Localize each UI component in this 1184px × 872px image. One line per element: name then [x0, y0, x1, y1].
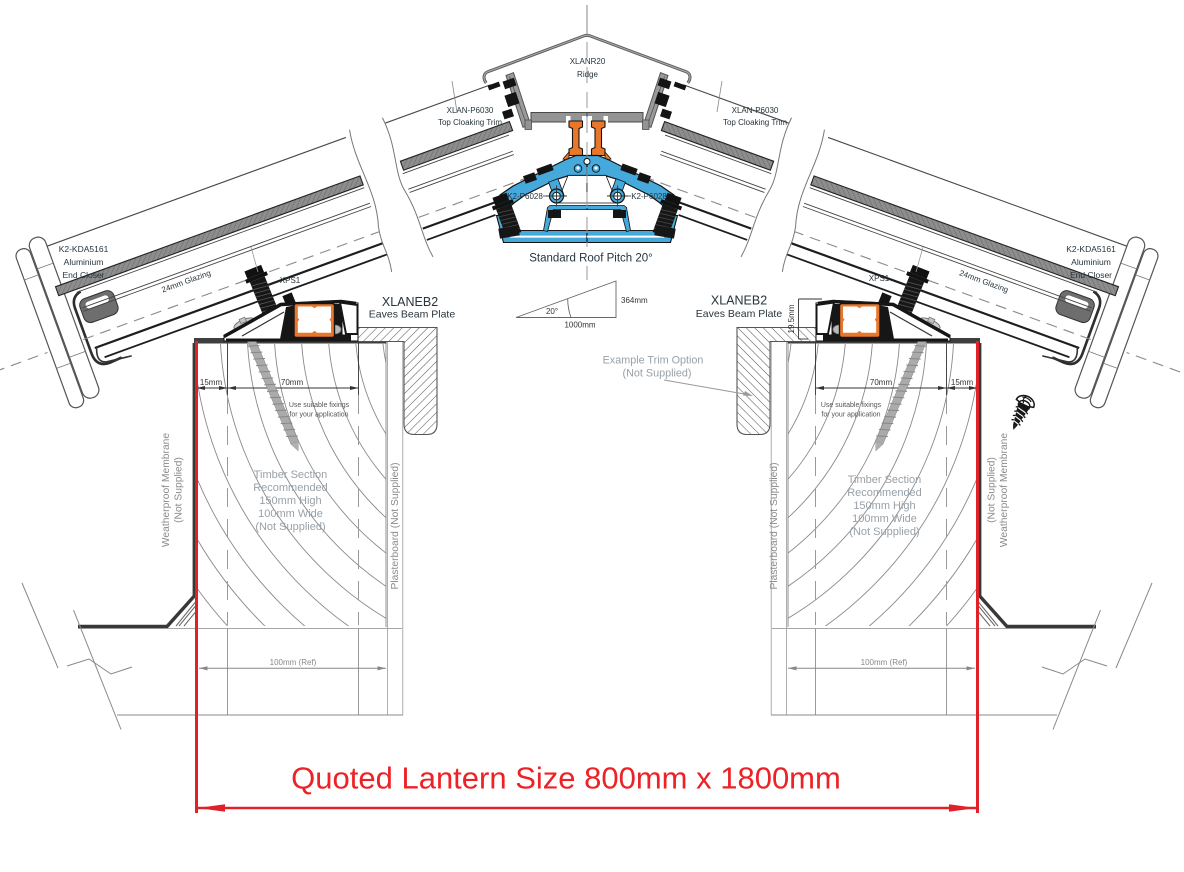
svg-text:19.5mm: 19.5mm — [787, 304, 796, 333]
svg-text:Recommended: Recommended — [847, 487, 922, 499]
svg-text:150mm High: 150mm High — [853, 500, 915, 512]
svg-text:1000mm: 1000mm — [564, 321, 595, 330]
svg-text:Use suitable fixings: Use suitable fixings — [289, 402, 350, 409]
svg-text:24mm Glazing: 24mm Glazing — [160, 268, 212, 294]
svg-text:XLANR20: XLANR20 — [570, 57, 606, 66]
svg-text:End Closer: End Closer — [1070, 270, 1112, 280]
svg-text:Top Cloaking Trim: Top Cloaking Trim — [438, 118, 502, 127]
svg-text:Recommended: Recommended — [253, 482, 328, 494]
svg-text:(Not Supplied): (Not Supplied) — [849, 526, 919, 538]
svg-text:XPS1: XPS1 — [869, 274, 890, 283]
svg-text:Ridge: Ridge — [577, 70, 598, 79]
svg-text:Weatherproof Membrane: Weatherproof Membrane — [161, 433, 172, 548]
svg-text:Eaves Beam Plate: Eaves Beam Plate — [696, 308, 783, 320]
svg-text:(Not Supplied): (Not Supplied) — [987, 457, 998, 523]
svg-text:364mm: 364mm — [621, 296, 648, 305]
svg-text:100mm Wide: 100mm Wide — [852, 513, 917, 525]
svg-text:K2-P6028: K2-P6028 — [631, 192, 667, 201]
svg-text:100mm (Ref): 100mm (Ref) — [270, 658, 317, 667]
svg-text:100mm Wide: 100mm Wide — [258, 508, 323, 520]
svg-text:Aluminium: Aluminium — [1071, 257, 1111, 267]
svg-text:15mm: 15mm — [951, 378, 974, 387]
svg-text:150mm High: 150mm High — [259, 495, 321, 507]
svg-text:XLANEB2: XLANEB2 — [382, 295, 438, 309]
svg-text:Timber Section: Timber Section — [848, 474, 922, 486]
svg-text:(Not Supplied): (Not Supplied) — [255, 521, 325, 533]
svg-text:XPS1: XPS1 — [280, 276, 301, 285]
svg-text:K2-KDA5161: K2-KDA5161 — [59, 244, 109, 254]
svg-text:XLAN-P6030: XLAN-P6030 — [447, 106, 494, 115]
svg-text:Standard Roof Pitch 20°: Standard Roof Pitch 20° — [529, 253, 653, 265]
svg-text:Top Cloaking Trim: Top Cloaking Trim — [723, 118, 787, 127]
svg-text:for your application: for your application — [289, 412, 348, 419]
svg-text:XLAN-P6030: XLAN-P6030 — [732, 106, 779, 115]
svg-text:K2-KDA5161: K2-KDA5161 — [1066, 244, 1116, 254]
svg-text:Eaves Beam Plate: Eaves Beam Plate — [369, 309, 456, 321]
svg-text:Use suitable fixings: Use suitable fixings — [821, 402, 882, 409]
svg-text:Weatherproof Membrane: Weatherproof Membrane — [999, 433, 1010, 548]
svg-text:K2-P6028: K2-P6028 — [507, 192, 543, 201]
svg-text:20°: 20° — [546, 307, 558, 316]
svg-text:Plasterboard (Not Supplied): Plasterboard (Not Supplied) — [390, 462, 401, 589]
svg-text:70mm: 70mm — [281, 378, 304, 387]
svg-text:Aluminium: Aluminium — [64, 257, 104, 267]
svg-text:for your application: for your application — [821, 412, 880, 419]
svg-text:End Closer: End Closer — [62, 270, 104, 280]
svg-text:XLANEB2: XLANEB2 — [711, 294, 767, 308]
svg-text:Plasterboard (Not Supplied): Plasterboard (Not Supplied) — [769, 462, 780, 589]
svg-text:Quoted Lantern Size 800mm x 18: Quoted Lantern Size 800mm x 1800mm — [291, 761, 841, 796]
svg-text:(Not Supplied): (Not Supplied) — [174, 457, 185, 523]
svg-text:15mm: 15mm — [200, 378, 223, 387]
svg-text:Timber Section: Timber Section — [254, 469, 328, 481]
svg-text:70mm: 70mm — [870, 378, 893, 387]
svg-text:(Not Supplied): (Not Supplied) — [622, 368, 691, 380]
svg-text:100mm (Ref): 100mm (Ref) — [861, 658, 908, 667]
svg-text:Example Trim Option: Example Trim Option — [603, 355, 704, 367]
